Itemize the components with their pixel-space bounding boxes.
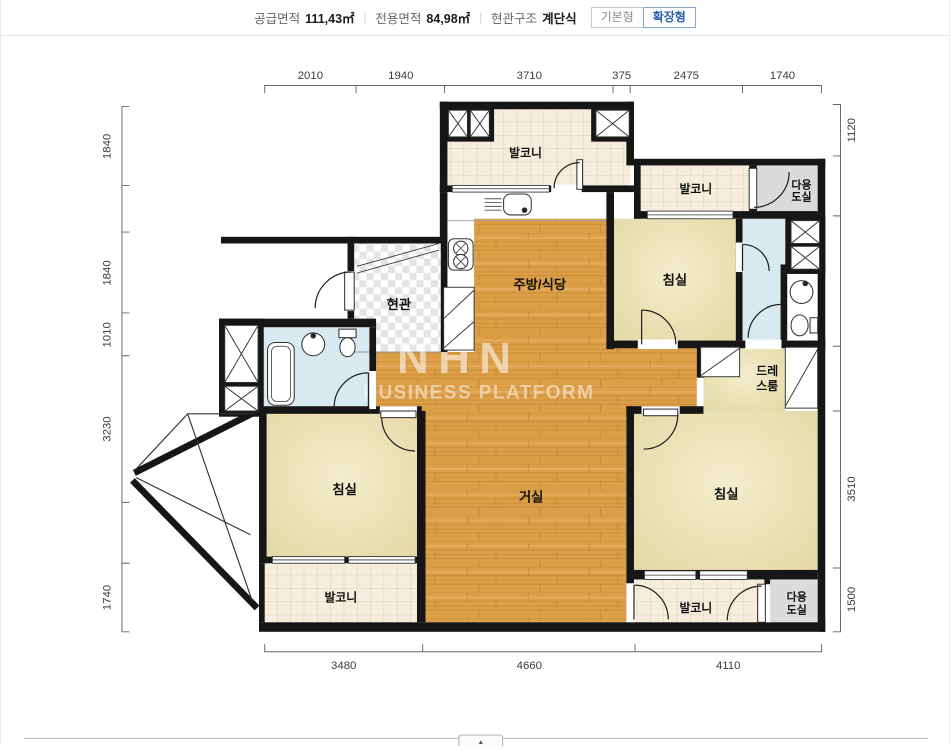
label-balcony-bottom-right: 발코니	[679, 601, 712, 615]
room-bath-right-lower	[742, 271, 780, 340]
closet-diagonal-icon	[701, 347, 740, 377]
dim-top-0: 2010	[298, 70, 323, 82]
label-dressroom-1: 드레	[756, 364, 778, 378]
label-utility-bottom-1: 다용	[787, 589, 807, 603]
toilet-icon	[339, 329, 356, 357]
watermark-subtitle: BUSINESS PLATFORM	[363, 383, 594, 404]
label-utility-top-2: 도실	[791, 190, 811, 204]
floorplan-page: 공급면적 111,43㎡ | 전용면적 84,98㎡ | 현관구조 계단식 기본…	[0, 0, 950, 744]
closet-x-icon	[225, 386, 258, 411]
label-bedroom-left: 침실	[332, 482, 357, 497]
extended-type-button[interactable]: 확장형	[643, 7, 696, 28]
collapse-tab[interactable]: ▲	[459, 735, 503, 746]
dim-left-4: 1740	[102, 585, 114, 610]
toilet-icon	[791, 315, 818, 336]
door-arc	[315, 272, 354, 310]
dim-top-2: 3710	[517, 70, 542, 82]
sink-icon	[302, 333, 325, 356]
bathtub-icon	[268, 342, 295, 405]
dim-left-1: 1840	[102, 260, 114, 285]
entrance-type-value: 계단식	[542, 8, 577, 27]
exclusive-area-value: 84,98㎡	[426, 8, 470, 27]
bottom-bar: ▲	[24, 735, 928, 746]
window	[452, 185, 549, 192]
separator: |	[479, 12, 482, 24]
closet-x-icon	[225, 325, 258, 382]
supply-area-value: 111,43㎡	[305, 8, 354, 27]
stove-icon	[448, 239, 473, 270]
kitchen-sink-icon	[504, 194, 532, 215]
basic-type-button[interactable]: 기본형	[591, 7, 643, 28]
closet-x-icon	[448, 110, 467, 137]
label-bedroom-right: 침실	[714, 487, 739, 502]
dim-right-1: 3510	[846, 476, 858, 501]
dim-left-2: 1010	[102, 322, 114, 347]
label-kitchen: 주방/식당	[513, 276, 566, 292]
dim-right-2: 1500	[846, 587, 858, 612]
dim-top-1: 1940	[388, 70, 413, 82]
closet-diagonal-icon	[785, 347, 817, 408]
label-living: 거실	[519, 489, 544, 504]
exclusive-area-label: 전용면적	[375, 8, 421, 27]
dim-top-4: 2475	[674, 70, 699, 82]
separator: |	[364, 12, 367, 24]
info-header: 공급면적 111,43㎡ | 전용면적 84,98㎡ | 현관구조 계단식 기본…	[1, 0, 949, 36]
entrance-type-label: 현관구조	[491, 8, 537, 27]
window	[647, 211, 733, 219]
dim-left-3: 3230	[102, 416, 114, 441]
floorplan-canvas: NHN BUSINESS PLATFORM	[1, 36, 950, 746]
entrance-type-field: 현관구조 계단식	[491, 8, 577, 27]
label-balcony-bottom-left: 발코니	[324, 590, 357, 604]
dim-top-5: 1740	[770, 70, 795, 82]
label-utility-top-1: 다용	[791, 177, 811, 191]
plan-type-toggle: 기본형 확장형	[591, 7, 696, 28]
dim-bottom-1: 4660	[517, 660, 542, 672]
label-balcony-top-right: 발코니	[679, 182, 712, 196]
vent-lines-icon	[485, 199, 502, 210]
label-balcony-top: 발코니	[509, 146, 542, 160]
cabinet-diagonal-icon	[444, 287, 474, 350]
label-dressroom-2: 스룸	[756, 379, 778, 393]
dim-top-3: 375	[612, 70, 631, 82]
closet-x-icon	[470, 110, 489, 137]
dim-bottom-2: 4110	[716, 660, 741, 672]
supply-area-field: 공급면적 111,43㎡	[254, 8, 354, 27]
dim-left-0: 1840	[102, 134, 114, 159]
closet-x-icon	[791, 221, 820, 244]
collapse-arrow-icon: ▲	[477, 739, 484, 746]
label-utility-bottom-2: 도실	[787, 603, 807, 617]
closet-x-icon	[596, 110, 629, 137]
sink-icon	[790, 281, 813, 304]
dim-bottom-0: 3480	[331, 660, 356, 672]
supply-area-label: 공급면적	[254, 8, 300, 27]
window	[644, 571, 695, 580]
bay-walls	[132, 412, 257, 608]
label-entrance: 현관	[387, 296, 412, 312]
label-bedroom-top-right: 침실	[663, 272, 688, 287]
dim-right-0: 1120	[846, 118, 858, 143]
closet-x-icon	[791, 246, 820, 269]
window	[272, 557, 344, 564]
exclusive-area-field: 전용면적 84,98㎡	[375, 8, 470, 27]
window	[348, 557, 415, 564]
window	[700, 571, 748, 580]
